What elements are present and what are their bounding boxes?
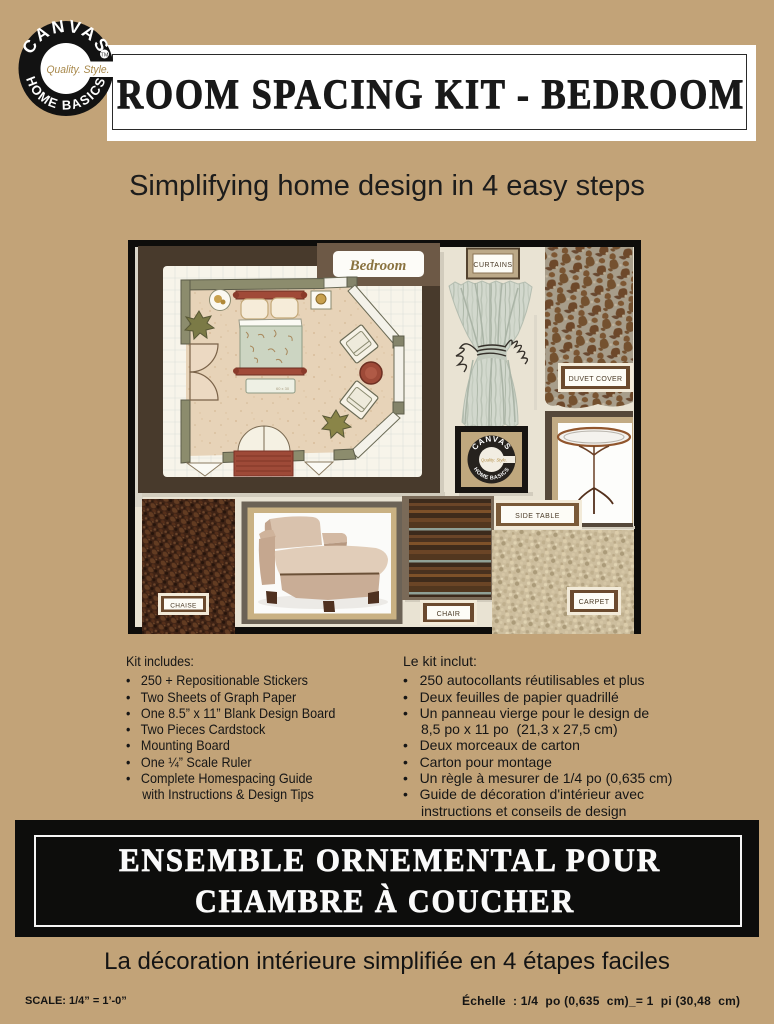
svg-text:DUVET COVER: DUVET COVER (569, 376, 623, 383)
svg-text:ROOM SPACING KIT - BEDROOM: ROOM SPACING KIT - BEDROOM (117, 73, 745, 119)
svg-text:Quality. Style.: Quality. Style. (47, 64, 110, 76)
svg-text:CURTAINS: CURTAINS (473, 262, 512, 269)
svg-text:SIDE TABLE: SIDE TABLE (515, 513, 560, 520)
svg-text:CHAIR: CHAIR (437, 611, 461, 618)
svg-text:60 x 30: 60 x 30 (276, 386, 290, 391)
svg-text:TM: TM (101, 53, 109, 59)
svg-text:CHAISE: CHAISE (170, 603, 197, 610)
svg-text:ENSEMBLE ORNEMENTAL POUR: ENSEMBLE ORNEMENTAL POUR (119, 843, 661, 879)
svg-text:Quality. Style.: Quality. Style. (481, 457, 507, 462)
svg-text:CARPET: CARPET (579, 599, 610, 606)
svg-text:Bedroom: Bedroom (349, 258, 407, 274)
svg-text:CHAMBRE À COUCHER: CHAMBRE À COUCHER (195, 883, 575, 920)
